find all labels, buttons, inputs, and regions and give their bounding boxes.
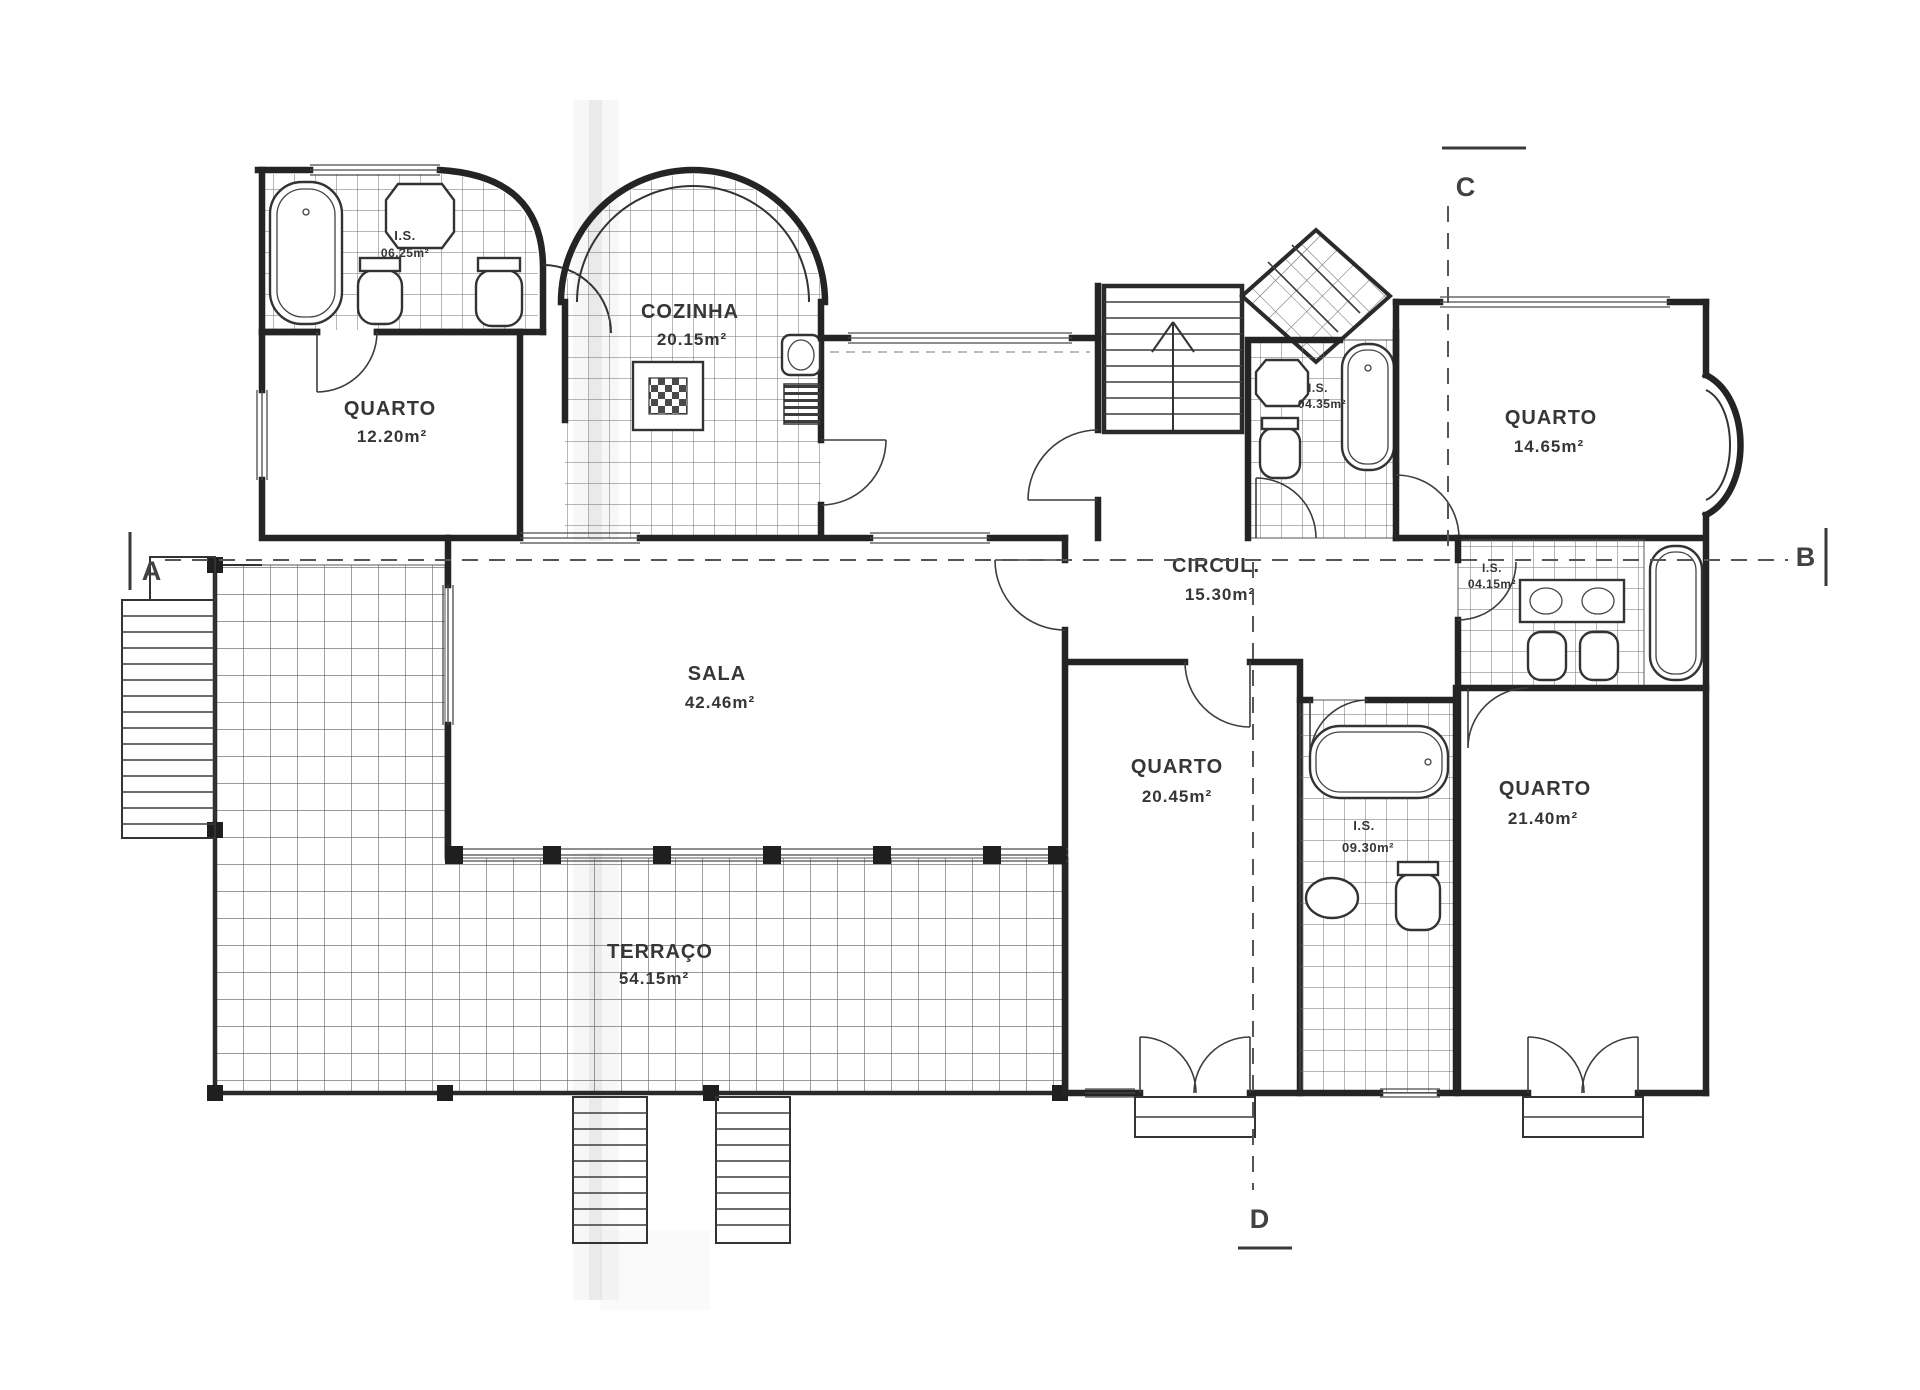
bedroom-se: QUARTO 21.40m²	[1458, 688, 1706, 1137]
kitchen: COZINHA 20.15m²	[561, 170, 886, 538]
door-arc-hall	[1028, 430, 1098, 500]
double-sink-icon	[1520, 580, 1624, 622]
bath-nw-label: I.S.	[394, 228, 416, 243]
bathroom-south-area: 09.30m²	[1342, 840, 1394, 855]
toilet-south-icon	[1396, 862, 1440, 930]
bathtub-east-icon	[1650, 546, 1702, 680]
sink-south-icon	[1306, 878, 1358, 918]
kitchen-area: 20.15m²	[657, 330, 727, 349]
door-arc-bedroom-se	[1468, 688, 1528, 748]
french-door-se	[1528, 1037, 1638, 1093]
terrace-area: 54.15m²	[619, 969, 689, 988]
section-letter-b: B	[1796, 542, 1817, 572]
kitchen-table-icon	[633, 362, 703, 430]
outdoor-stair-west	[122, 557, 215, 838]
section-letter-a: A	[142, 556, 163, 586]
stove-icon	[784, 384, 820, 424]
bathtub-small-icon	[1342, 344, 1394, 470]
bathroom-stair: I.S. 04.35m²	[1248, 332, 1396, 538]
entry-hall	[821, 286, 1098, 538]
living-room-area: 42.46m²	[685, 693, 755, 712]
bathroom-nw: I.S. 06.25m²	[258, 165, 611, 333]
bathroom-east-label: I.S.	[1482, 561, 1502, 575]
door-arc-kitchen-hall	[821, 440, 886, 505]
living-room-label: SALA	[688, 663, 746, 685]
french-door-south	[1140, 1037, 1250, 1093]
toilet-small-icon	[1260, 418, 1300, 478]
kitchen-label: COZINHA	[641, 301, 739, 323]
section-letter-d: D	[1250, 1204, 1271, 1234]
floor-plan-drawing: TERRAÇO 54.15m² I.S. 06.25m²	[0, 0, 1920, 1390]
bathtub-south-icon	[1310, 726, 1448, 798]
bedroom-se-label: QUARTO	[1499, 778, 1591, 800]
bedroom-nw-area: 12.20m²	[357, 427, 427, 446]
bedroom-nw-label: QUARTO	[344, 398, 436, 420]
toilet-icon	[358, 258, 402, 324]
door-arc-bedroom-nw	[317, 332, 377, 392]
circulation-label: CIRCUL.	[1172, 555, 1260, 577]
bath-stair-area: 04.35m²	[1298, 397, 1346, 411]
bath-nw-area: 06.25m²	[381, 246, 429, 260]
door-arc-bedroom-ne	[1396, 475, 1459, 538]
bedroom-se-area: 21.40m²	[1508, 809, 1578, 828]
bath-stair-label: I.S.	[1308, 381, 1328, 395]
bedroom-ne-area: 14.65m²	[1514, 437, 1584, 456]
bedroom-south-label: QUARTO	[1131, 756, 1223, 778]
bathroom-south-label: I.S.	[1353, 818, 1375, 833]
bathtub-icon	[270, 182, 342, 324]
floor-plan-page: TERRAÇO 54.15m² I.S. 06.25m²	[0, 0, 1920, 1390]
bedroom-south-area: 20.45m²	[1142, 787, 1212, 806]
bedroom-ne-label: QUARTO	[1505, 407, 1597, 429]
bidet-icon	[476, 258, 522, 326]
bedroom-south: QUARTO 20.45m²	[1068, 662, 1300, 1137]
bathroom-south: I.S. 09.30m²	[1300, 688, 1456, 1097]
kitchen-sink-icon	[782, 335, 820, 375]
door-arc-bedroom-south	[1185, 662, 1250, 727]
terrace-label: TERRAÇO	[607, 941, 713, 963]
bathroom-east-area: 04.15m²	[1468, 577, 1516, 591]
section-letter-c: C	[1456, 172, 1477, 202]
circulation-area: 15.30m²	[1185, 585, 1255, 604]
